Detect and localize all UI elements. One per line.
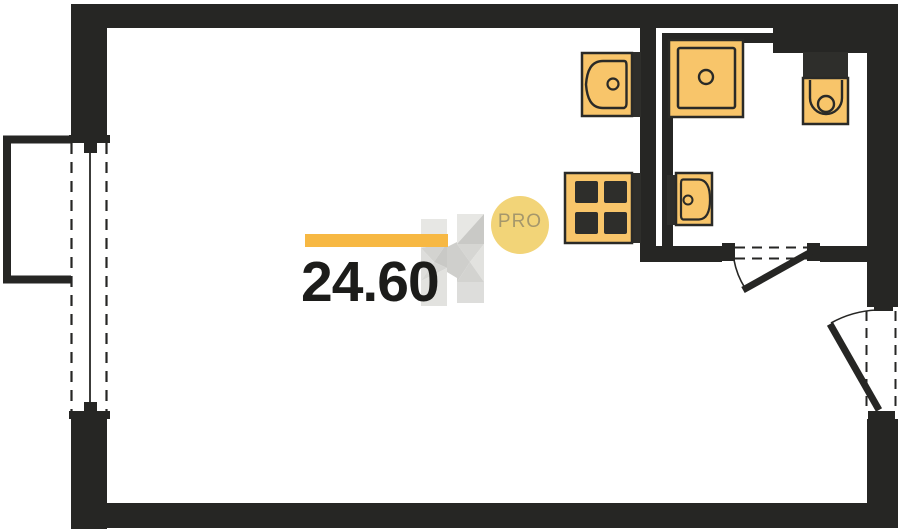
bathroom-door bbox=[722, 243, 820, 290]
balcony bbox=[7, 140, 71, 280]
wall-bathroom-partition bbox=[640, 28, 656, 262]
stove-burner bbox=[575, 212, 598, 234]
window-sill-bottom bbox=[69, 411, 110, 419]
stove-icon bbox=[565, 173, 641, 243]
pro-badge: PRO bbox=[491, 196, 549, 254]
stove-burner bbox=[604, 181, 627, 203]
entry-door bbox=[830, 303, 896, 419]
window-sill-top bbox=[69, 135, 110, 143]
wall-bottom bbox=[71, 503, 898, 528]
floor-plan-drawing bbox=[0, 0, 900, 532]
bathroom-door-arc bbox=[734, 260, 745, 288]
entry-door-leaf bbox=[830, 324, 879, 410]
bathroom-sink-icon bbox=[667, 173, 712, 225]
wall-top bbox=[72, 4, 898, 28]
entry-door-jamb-bottom bbox=[868, 411, 895, 419]
walls bbox=[71, 4, 898, 529]
wall-left-upper bbox=[71, 4, 107, 137]
shower-body bbox=[669, 40, 743, 117]
shower-icon bbox=[669, 40, 743, 117]
stove-burner bbox=[604, 212, 627, 234]
pro-badge-label: PRO bbox=[498, 211, 542, 233]
kitchen-sink-icon bbox=[582, 52, 641, 117]
wall-bathroom-bottom-left bbox=[640, 246, 722, 262]
window-jamb-top bbox=[84, 143, 97, 153]
floor-plan-canvas: 24.60 PRO bbox=[0, 0, 900, 532]
wall-bathroom-bottom-right bbox=[820, 246, 882, 262]
window-jamb-bottom bbox=[84, 402, 97, 412]
toilet-icon bbox=[803, 52, 848, 124]
window-left bbox=[69, 135, 110, 419]
entry-door-arc bbox=[831, 310, 877, 323]
stove-burner bbox=[575, 181, 598, 203]
area-label: 24.60 bbox=[301, 254, 439, 311]
bathroom-door-jamb-left bbox=[722, 243, 735, 261]
area-accent-bar bbox=[305, 234, 448, 247]
wall-right-lower bbox=[867, 419, 898, 528]
bathroom-sink-mount bbox=[667, 175, 676, 225]
toilet-tank bbox=[803, 52, 848, 78]
ventilation-shaft bbox=[773, 28, 867, 53]
